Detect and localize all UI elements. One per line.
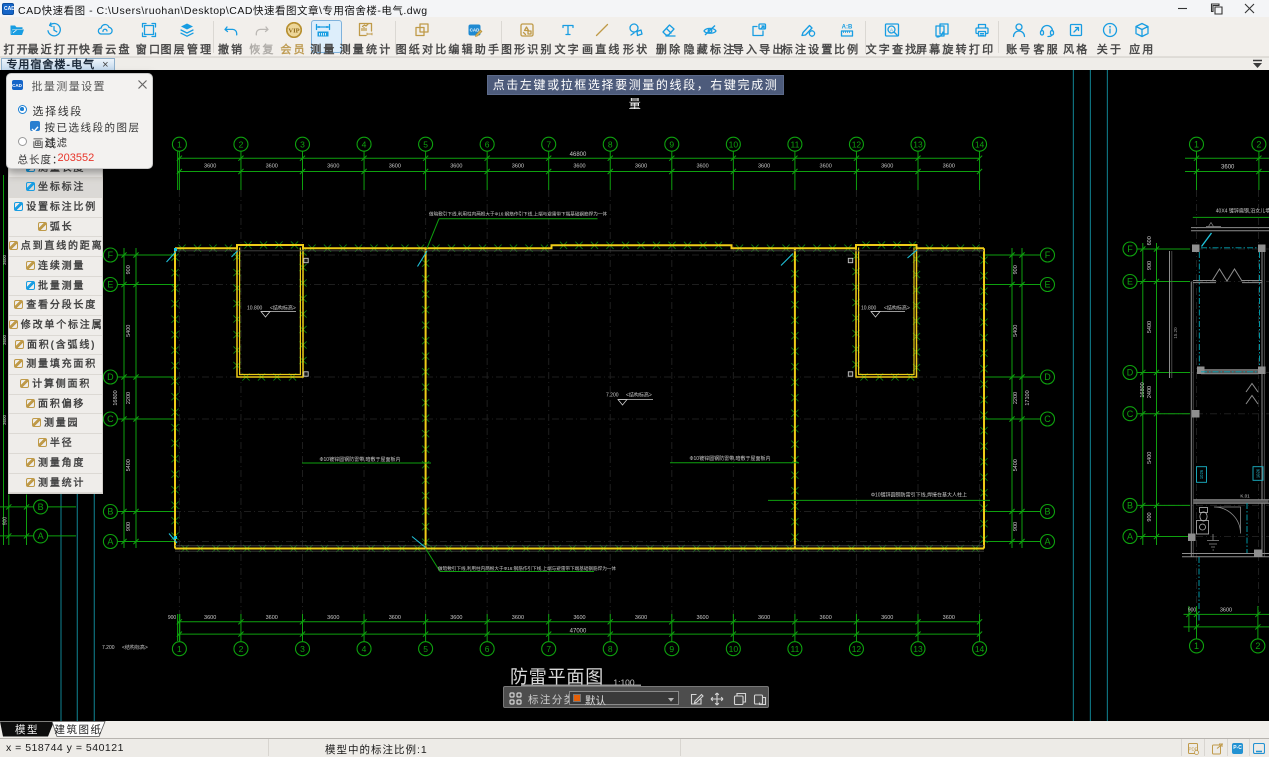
svg-text:3600: 3600 [635,163,647,169]
svg-text:46800: 46800 [570,152,587,158]
svg-text:B: B [107,507,113,517]
svg-text:13: 13 [913,644,923,654]
svg-text:5: 5 [423,644,428,654]
svg-text:3600: 3600 [1221,164,1235,170]
svg-text:防雷平面图: 防雷平面图 [510,667,604,687]
svg-text:10.800: 10.800 [861,306,877,312]
svg-text:C: C [1044,414,1051,424]
svg-text:1: 1 [1194,139,1199,149]
svg-text:3600: 3600 [450,615,462,621]
svg-text:建筑图纸: 建筑图纸 [55,723,103,736]
svg-text:3600: 3600 [820,615,832,621]
svg-text:8: 8 [608,644,613,654]
svg-text:900: 900 [1147,261,1153,270]
svg-text:1: 1 [1194,641,1199,651]
svg-text:7: 7 [546,644,551,654]
svg-text:5400: 5400 [126,459,132,471]
svg-text:C: C [107,414,114,424]
svg-text:2: 2 [1255,641,1260,651]
svg-text:6: 6 [485,644,490,654]
svg-text:A: A [107,537,113,547]
svg-text:3600: 3600 [266,615,278,621]
svg-text:5400: 5400 [1147,452,1153,464]
svg-text:做暗敷引下线,利用柱内两根大于Φ16:钢筋作引下线,上端与避: 做暗敷引下线,利用柱内两根大于Φ16:钢筋作引下线,上端与避雷带下端基础钢筋焊为… [438,565,616,572]
svg-text:Φ10镀锌圆钢防雷引下线,焊接在基大人柱上: Φ10镀锌圆钢防雷引下线,焊接在基大人柱上 [871,492,967,499]
svg-text:1026: 1026 [1256,468,1261,478]
svg-text:C: C [1127,409,1134,419]
svg-text:10: 10 [729,644,739,654]
svg-text:D: D [1127,368,1134,378]
svg-text:3600: 3600 [573,163,585,169]
svg-text:A: A [890,27,893,32]
svg-text:3600: 3600 [943,163,955,169]
svg-text:B: B [1127,501,1133,511]
svg-text:4: 4 [362,644,367,654]
svg-text:1: 1 [177,644,182,654]
svg-text:16800: 16800 [113,390,119,405]
svg-text:3600: 3600 [512,163,524,169]
svg-text:3600: 3600 [450,163,462,169]
svg-text:2400: 2400 [1147,386,1153,398]
svg-text:3600: 3600 [881,163,893,169]
svg-text:3600: 3600 [204,163,216,169]
svg-text:3600: 3600 [758,163,770,169]
svg-text:10: 10 [729,139,739,149]
svg-text:D: D [1044,372,1051,382]
svg-text:8: 8 [608,139,613,149]
svg-text:9: 9 [669,644,674,654]
svg-text:3600: 3600 [389,615,401,621]
svg-text:3600: 3600 [758,615,770,621]
svg-text:A:B: A:B [842,25,853,31]
svg-text:3600: 3600 [204,615,216,621]
svg-text:900: 900 [1013,522,1019,531]
svg-text:12: 12 [852,644,862,654]
svg-text:F: F [108,250,114,260]
svg-text:B: B [38,502,44,512]
svg-text:3600: 3600 [2,414,7,425]
svg-text:3600: 3600 [512,615,524,621]
svg-text:1026: 1026 [1199,469,1204,479]
svg-text:4: 4 [362,139,367,149]
svg-text:5400: 5400 [1147,321,1153,333]
svg-text:3600: 3600 [2,334,7,345]
svg-text:11: 11 [790,644,799,654]
svg-text:A: A [1127,532,1133,542]
svg-text:2200: 2200 [1013,392,1019,404]
svg-text:900: 900 [1147,512,1153,521]
svg-text:1: 1 [177,139,182,149]
svg-text:3600: 3600 [635,615,647,621]
svg-text:VIP: VIP [288,28,299,35]
svg-text:Φ10镀锌圆钢防雷带,暗敷于屋面板内: Φ10镀锌圆钢防雷带,暗敷于屋面板内 [690,455,771,462]
svg-text:6: 6 [485,139,490,149]
svg-text:900: 900 [126,265,132,274]
svg-text:3600: 3600 [327,163,339,169]
svg-text:7.200: 7.200 [102,645,115,651]
svg-text:47000: 47000 [570,628,587,634]
svg-text:E: E [1044,280,1050,290]
svg-text:F: F [1127,244,1133,254]
svg-text:5400: 5400 [126,325,132,337]
svg-text:14: 14 [975,644,985,654]
svg-text:3600: 3600 [2,254,7,265]
svg-text:900: 900 [1188,607,1197,613]
svg-text:900: 900 [126,522,132,531]
svg-text:3600: 3600 [389,163,401,169]
svg-text:7.200: 7.200 [606,393,619,399]
svg-text:900: 900 [1013,265,1019,274]
svg-text:E: E [107,280,113,290]
svg-text:3600: 3600 [820,163,832,169]
svg-text:F: F [1045,250,1051,260]
svg-text:3600: 3600 [573,615,585,621]
svg-text:14: 14 [975,139,985,149]
svg-text:13: 13 [913,139,923,149]
svg-text:900: 900 [168,615,177,621]
svg-text:2: 2 [239,644,244,654]
svg-text:10.800: 10.800 [247,306,263,312]
svg-text:A: A [38,531,44,541]
svg-text:2: 2 [239,139,244,149]
svg-text:16800: 16800 [1140,382,1146,397]
svg-text:600: 600 [1147,236,1153,245]
svg-text:<结构标高>: <结构标高> [122,644,148,651]
svg-text:3600: 3600 [266,163,278,169]
svg-text:3: 3 [300,644,305,654]
svg-text:3: 3 [300,139,305,149]
svg-text:3600: 3600 [696,163,708,169]
svg-text:D: D [107,372,114,382]
svg-text:<结构标高>: <结构标高> [884,305,910,312]
svg-text:E: E [1127,277,1133,287]
svg-text:40X4 镀锌扁钢,沿女儿墙敷设: 40X4 镀锌扁钢,沿女儿墙敷设 [1216,208,1269,215]
svg-text:<结构标高>: <结构标高> [270,305,296,312]
svg-text:900: 900 [3,517,9,526]
svg-text:5400: 5400 [1013,325,1019,337]
svg-text:5400: 5400 [1013,459,1019,471]
svg-text:A: A [1044,537,1050,547]
svg-text:5: 5 [423,139,428,149]
svg-text:11: 11 [790,139,799,149]
svg-text:15.20: 15.20 [1173,327,1178,339]
svg-text:2: 2 [1256,139,1261,149]
svg-text:2200: 2200 [126,392,132,404]
svg-text:7: 7 [546,139,551,149]
svg-text:3600: 3600 [1220,607,1232,613]
svg-text:3600: 3600 [881,615,893,621]
svg-text:K.01: K.01 [1240,494,1250,499]
svg-text:3600: 3600 [943,615,955,621]
svg-text:17100: 17100 [1025,390,1031,405]
svg-text:12: 12 [852,139,862,149]
svg-text:3600: 3600 [696,615,708,621]
svg-text:Φ10镀锌圆钢防雷带,暗敷于屋面板内: Φ10镀锌圆钢防雷带,暗敷于屋面板内 [320,456,401,463]
svg-text:9: 9 [669,139,674,149]
svg-text:3600: 3600 [327,615,339,621]
svg-text:B: B [1044,507,1050,517]
svg-text:模型: 模型 [15,723,39,736]
svg-text:做暗敷引下线,利用柱内两根大于Φ16:钢筋作引下线,上端与避: 做暗敷引下线,利用柱内两根大于Φ16:钢筋作引下线,上端与避雷带下端基础钢筋焊为… [429,211,607,218]
svg-text:<结构标高>: <结构标高> [626,392,652,399]
